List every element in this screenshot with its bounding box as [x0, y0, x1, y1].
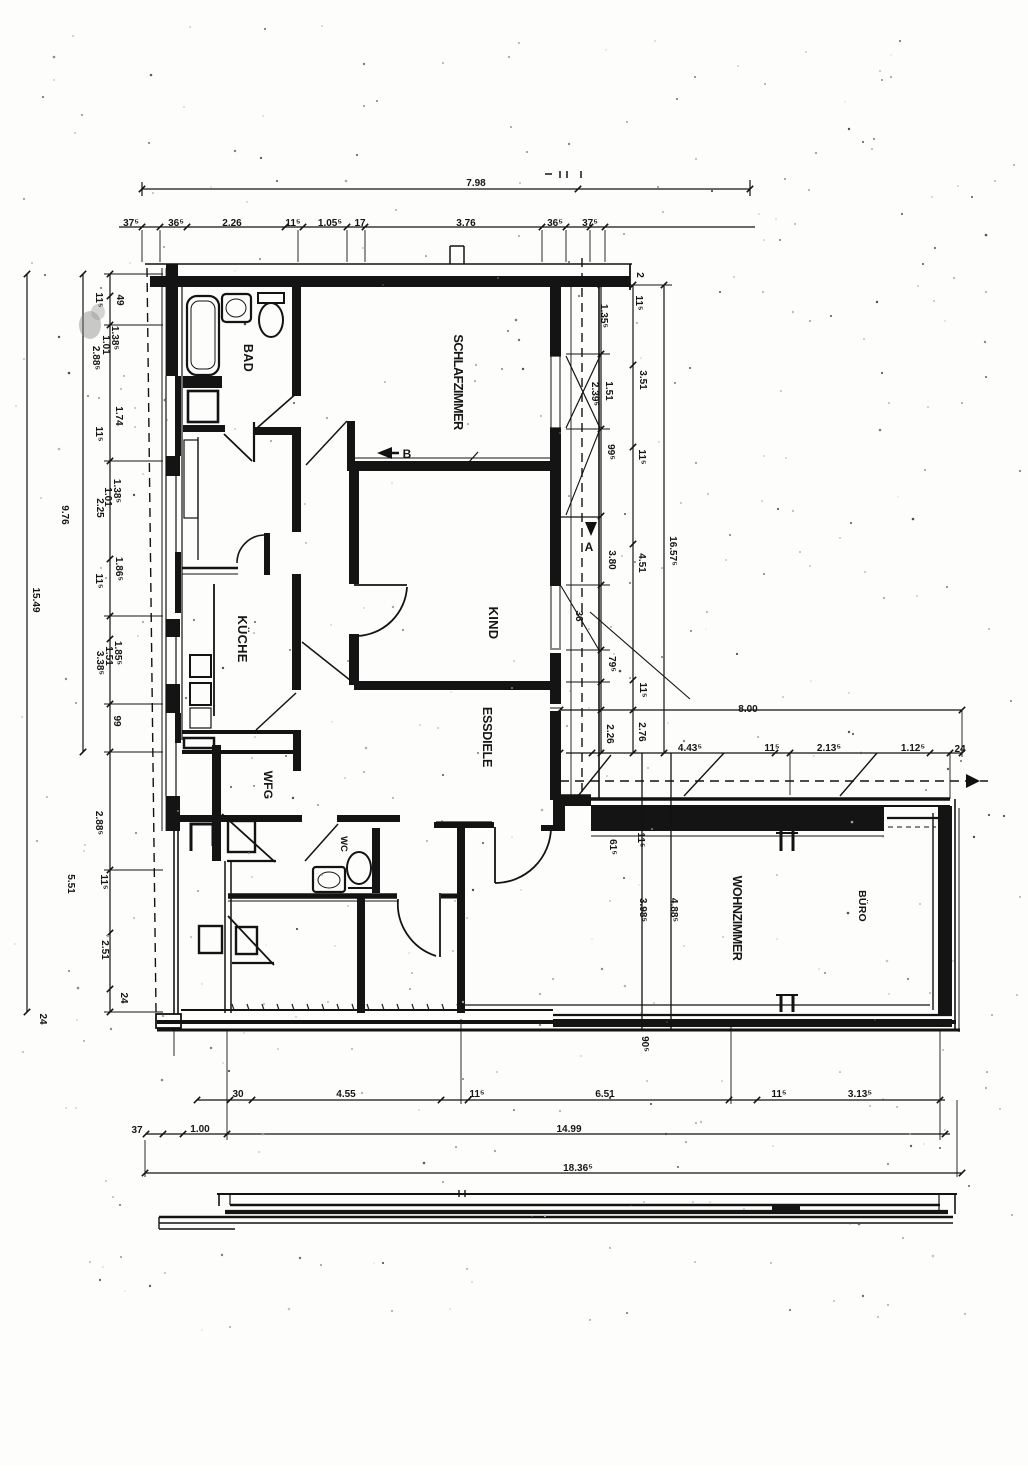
svg-text:36⁵: 36⁵ [547, 218, 563, 229]
svg-text:18.36⁵: 18.36⁵ [563, 1163, 593, 1174]
svg-text:2.88⁵: 2.88⁵ [90, 346, 101, 370]
svg-text:7.98: 7.98 [466, 178, 486, 189]
svg-text:11⁵: 11⁵ [764, 743, 780, 754]
svg-text:37⁵: 37⁵ [123, 218, 139, 229]
svg-text:2.25: 2.25 [94, 498, 105, 518]
svg-text:KIND: KIND [486, 607, 501, 640]
svg-text:2.51: 2.51 [99, 940, 110, 960]
svg-text:37⁵: 37⁵ [582, 218, 598, 229]
svg-text:11⁵: 11⁵ [636, 449, 647, 465]
svg-text:30: 30 [232, 1089, 244, 1100]
svg-text:WOHNZIMMER: WOHNZIMMER [730, 876, 744, 961]
svg-text:16.57⁵: 16.57⁵ [667, 536, 678, 566]
svg-text:2.76: 2.76 [636, 722, 647, 742]
svg-text:1.05⁵: 1.05⁵ [318, 218, 342, 229]
svg-text:15.49: 15.49 [30, 587, 41, 612]
svg-text:BÜRO: BÜRO [856, 890, 869, 922]
svg-text:79⁵: 79⁵ [606, 656, 617, 672]
svg-text:2.26: 2.26 [222, 218, 242, 229]
svg-text:1.00: 1.00 [190, 1124, 210, 1135]
svg-text:3.80: 3.80 [606, 550, 617, 570]
svg-text:6.51: 6.51 [595, 1089, 615, 1100]
svg-text:3.13⁵: 3.13⁵ [848, 1089, 872, 1100]
svg-text:A: A [585, 540, 594, 554]
svg-text:90⁵: 90⁵ [639, 1036, 650, 1052]
svg-text:11⁵: 11⁵ [93, 426, 104, 442]
svg-text:1.35⁵: 1.35⁵ [598, 304, 609, 328]
svg-text:36⁵: 36⁵ [168, 218, 184, 229]
svg-text:WC: WC [338, 836, 349, 852]
svg-text:2.88⁵: 2.88⁵ [93, 811, 104, 835]
svg-text:BAD: BAD [241, 344, 255, 372]
svg-text:99⁵: 99⁵ [605, 444, 616, 460]
svg-text:17: 17 [354, 218, 366, 229]
svg-text:11⁵: 11⁵ [285, 218, 301, 229]
svg-text:9.76: 9.76 [59, 505, 70, 525]
svg-text:11⁵: 11⁵ [469, 1089, 485, 1100]
svg-text:24: 24 [37, 1013, 48, 1025]
svg-text:B: B [403, 447, 412, 461]
svg-text:1.12⁵: 1.12⁵ [901, 743, 925, 754]
svg-text:2: 2 [634, 272, 645, 278]
svg-text:WFG: WFG [261, 771, 275, 800]
svg-text:11⁵: 11⁵ [771, 1089, 787, 1100]
svg-text:49: 49 [114, 294, 125, 306]
svg-text:1.74: 1.74 [113, 406, 124, 426]
svg-text:3.51: 3.51 [637, 370, 648, 390]
svg-text:1.86⁵: 1.86⁵ [113, 557, 124, 581]
svg-text:37: 37 [131, 1125, 143, 1136]
svg-text:11⁵: 11⁵ [633, 295, 644, 311]
svg-text:3.38⁵: 3.38⁵ [94, 651, 105, 675]
svg-text:8.00: 8.00 [738, 704, 758, 715]
svg-text:11⁵: 11⁵ [637, 682, 648, 698]
svg-text:KÜCHE: KÜCHE [235, 615, 250, 662]
svg-text:4.55: 4.55 [336, 1089, 356, 1100]
svg-text:4.88⁵: 4.88⁵ [668, 898, 679, 922]
svg-text:11⁵: 11⁵ [98, 874, 109, 890]
svg-text:3.98⁵: 3.98⁵ [637, 898, 648, 922]
svg-text:4.43⁵: 4.43⁵ [678, 743, 702, 754]
svg-text:1.51: 1.51 [603, 381, 614, 401]
svg-text:4.51: 4.51 [636, 553, 647, 573]
svg-text:36: 36 [573, 610, 584, 622]
svg-text:3.76: 3.76 [456, 218, 476, 229]
svg-text:11⁵: 11⁵ [93, 573, 104, 589]
svg-text:2.26: 2.26 [604, 724, 615, 744]
svg-text:61⁵: 61⁵ [607, 839, 618, 855]
svg-text:ESSDIELE: ESSDIELE [480, 707, 494, 767]
svg-text:SCHLAFZIMMER: SCHLAFZIMMER [451, 334, 466, 430]
svg-text:11⁵: 11⁵ [635, 832, 646, 848]
svg-text:5.51: 5.51 [65, 874, 76, 894]
svg-text:99: 99 [111, 715, 122, 727]
svg-text:24: 24 [118, 992, 129, 1004]
svg-text:24: 24 [954, 744, 966, 755]
svg-text:2.39⁵: 2.39⁵ [589, 382, 600, 406]
svg-text:2.13⁵: 2.13⁵ [817, 743, 841, 754]
svg-text:14.99: 14.99 [556, 1124, 581, 1135]
